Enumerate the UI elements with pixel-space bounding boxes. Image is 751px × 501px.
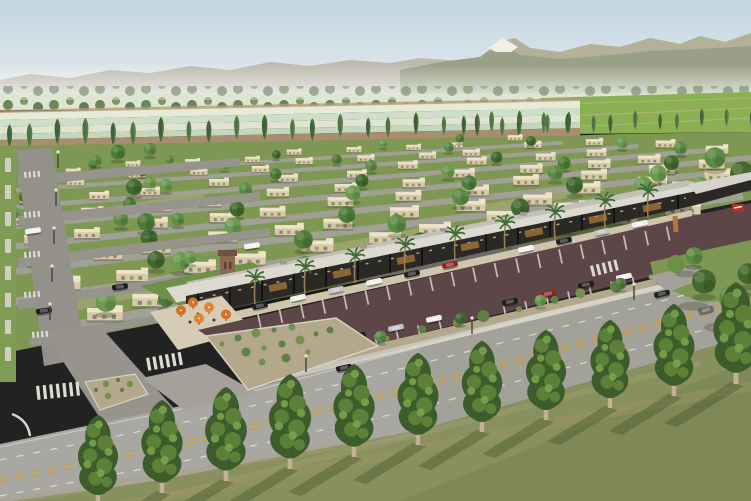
tree-shadow — [679, 302, 709, 311]
shrub — [282, 354, 291, 363]
shrub — [575, 288, 585, 298]
shrub — [477, 310, 489, 322]
light-pole-head — [632, 282, 635, 285]
shrub — [116, 378, 120, 382]
yard-tree — [491, 152, 502, 167]
median-tree — [147, 251, 165, 274]
shrub — [314, 332, 319, 337]
yard-tree — [332, 154, 342, 167]
yard-tree — [444, 142, 454, 155]
yard-tree — [616, 137, 627, 152]
strip-tree — [375, 331, 387, 346]
light-pole-head — [50, 264, 53, 267]
shrub — [289, 324, 296, 331]
shrub — [551, 296, 559, 304]
monument-sign — [732, 204, 744, 212]
sidewalk-segment — [5, 185, 11, 199]
median-tree — [144, 143, 157, 160]
strip-tree — [535, 295, 547, 310]
yard-tree — [548, 165, 563, 184]
median-tree — [126, 179, 142, 200]
yard-tree — [526, 136, 536, 149]
crosswalk-stripe — [49, 384, 54, 398]
tree-shadow — [675, 271, 697, 278]
shrub — [327, 327, 334, 334]
shrub — [296, 336, 305, 345]
shrub — [272, 328, 277, 333]
yard-tree — [270, 168, 281, 183]
crosswalk-stripe — [24, 252, 27, 258]
shrub — [105, 393, 111, 399]
yard-tree — [566, 177, 583, 199]
curb-arc — [12, 414, 30, 436]
crosswalk-stripe — [165, 354, 170, 367]
yard-tree — [294, 230, 313, 254]
crosswalk-stripe — [28, 212, 31, 218]
sidewalk-segment — [5, 320, 11, 334]
crosswalk — [146, 352, 183, 371]
tower-window — [229, 262, 232, 269]
yard-tree — [144, 177, 155, 192]
light-pole-head — [304, 354, 307, 357]
shrub — [94, 388, 98, 392]
left-verge — [0, 148, 16, 382]
crosswalk-stripe — [24, 172, 27, 178]
crosswalk-stripe — [62, 383, 67, 397]
shrub — [516, 306, 522, 312]
crosswalk-stripe — [36, 386, 41, 400]
yard-tree — [456, 134, 465, 145]
crosswalk-stripe — [28, 172, 31, 178]
tree — [705, 147, 726, 174]
yard-tree — [346, 185, 361, 204]
sidewalk-segment — [5, 212, 11, 226]
light-pole-head — [470, 316, 473, 319]
shrub — [220, 342, 225, 347]
crosswalk-stripe — [37, 171, 40, 177]
shrub — [127, 381, 133, 387]
yard-tree — [452, 188, 469, 210]
crosswalk-stripe — [36, 332, 39, 338]
crosswalk-stripe — [45, 331, 48, 337]
shrub — [306, 350, 311, 355]
yard-tree — [674, 142, 687, 159]
shrub — [418, 325, 426, 333]
crosswalk-stripe — [24, 212, 27, 218]
light-pole-head — [56, 150, 59, 153]
shrub — [235, 335, 242, 342]
sidewalk-segment — [5, 293, 11, 307]
crosswalk-stripe — [43, 385, 48, 399]
yard-tree — [272, 150, 281, 161]
tower-window — [224, 262, 227, 269]
crosswalk-stripe — [33, 291, 36, 297]
sidewalk-segment — [5, 158, 11, 172]
shrub — [120, 388, 124, 392]
yard-tree — [338, 206, 355, 228]
median-tree — [184, 251, 197, 268]
yard-tree — [388, 214, 407, 238]
crosswalk-stripe — [33, 171, 36, 177]
shrub — [103, 381, 109, 387]
crosswalk-stripe — [33, 251, 36, 257]
median-tree — [137, 213, 155, 236]
shrub — [242, 348, 251, 357]
sidewalk-segment — [5, 347, 11, 361]
crosswalk-stripe — [69, 382, 74, 396]
median-tree — [160, 179, 173, 196]
shrub — [259, 359, 266, 366]
light-pole-head — [54, 188, 57, 191]
shrub — [252, 329, 261, 338]
crosswalk-stripe — [146, 357, 151, 370]
crosswalk-stripe — [37, 211, 40, 217]
crosswalk-stripe — [56, 384, 61, 398]
scene-rendering — [0, 0, 751, 501]
crosswalk — [36, 382, 80, 400]
crosswalk-stripe — [171, 353, 176, 366]
sidewalk-segment — [5, 239, 11, 253]
median-tree — [172, 213, 185, 230]
yard-tree — [442, 165, 455, 182]
yard-tree — [379, 139, 388, 150]
strip-tree — [615, 278, 627, 293]
crosswalk-stripe — [37, 251, 40, 257]
crosswalk-stripe — [37, 291, 40, 297]
light-pole-head — [52, 226, 55, 229]
median-tree — [111, 145, 125, 164]
roadside-tree — [685, 247, 703, 270]
crosswalk-stripe — [152, 356, 157, 369]
rendering-viewport — [0, 0, 751, 501]
shrub — [262, 346, 267, 351]
shrub — [279, 341, 286, 348]
crosswalk-stripe — [33, 211, 36, 217]
crosswalk-stripe — [159, 355, 164, 368]
crosswalk-stripe — [41, 331, 44, 337]
strip-tree — [455, 313, 467, 328]
sidewalk-segment — [5, 266, 11, 280]
crosswalk-stripe — [24, 292, 27, 298]
entry-island — [667, 255, 685, 273]
crosswalk-stripe — [178, 352, 183, 365]
crosswalk-stripe — [28, 252, 31, 258]
light-pole-head — [48, 302, 51, 305]
median-tree — [90, 155, 101, 169]
crosswalk-stripe — [28, 292, 31, 298]
crosswalk-stripe — [32, 332, 35, 338]
yard-tree — [365, 160, 376, 175]
